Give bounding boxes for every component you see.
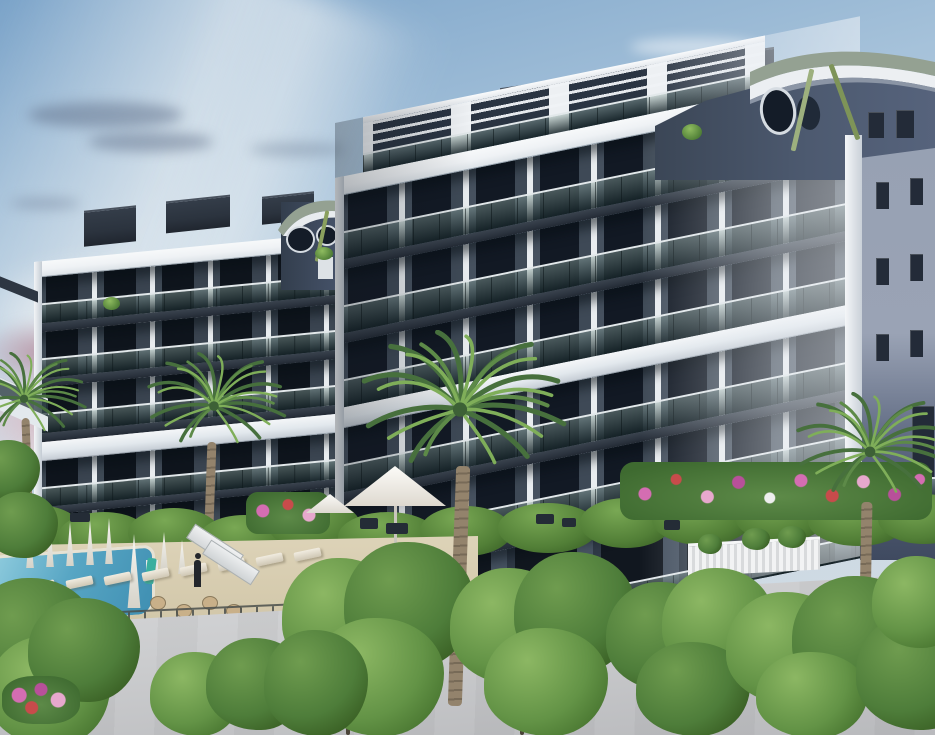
planter-plant <box>315 247 333 260</box>
side-window <box>876 334 889 361</box>
person-head <box>195 553 201 559</box>
garden-bush <box>778 526 806 548</box>
side-window <box>876 258 889 285</box>
side-window <box>910 178 923 205</box>
garden-bush <box>698 534 722 554</box>
rooftop-parapet <box>166 195 230 234</box>
terrace-furniture <box>664 520 680 530</box>
side-window <box>868 112 884 138</box>
lamppost-pole <box>40 660 43 735</box>
person-silhouette <box>194 560 201 587</box>
side-window <box>876 182 889 209</box>
terrace-furniture <box>562 518 576 527</box>
porthole-window <box>286 226 315 253</box>
rooftop-parapet <box>84 205 136 246</box>
side-window <box>910 254 923 281</box>
terrace-furniture <box>536 514 554 524</box>
balcony-plant <box>682 124 702 140</box>
palm-crown <box>138 352 290 456</box>
cafe-table <box>150 596 166 610</box>
side-return-slab <box>0 276 38 302</box>
terrace-furniture <box>386 523 408 534</box>
architectural-render <box>0 0 935 735</box>
palm-crown <box>0 352 90 442</box>
side-window <box>896 110 914 138</box>
palm-crown <box>786 392 935 507</box>
terrace-furniture <box>360 518 378 529</box>
lamppost-lantern <box>33 647 49 661</box>
planter-pedestal <box>318 257 333 279</box>
balcony-plant <box>103 297 120 310</box>
palm-crown <box>348 330 572 483</box>
side-window <box>910 330 923 357</box>
garden-bush <box>742 528 770 550</box>
